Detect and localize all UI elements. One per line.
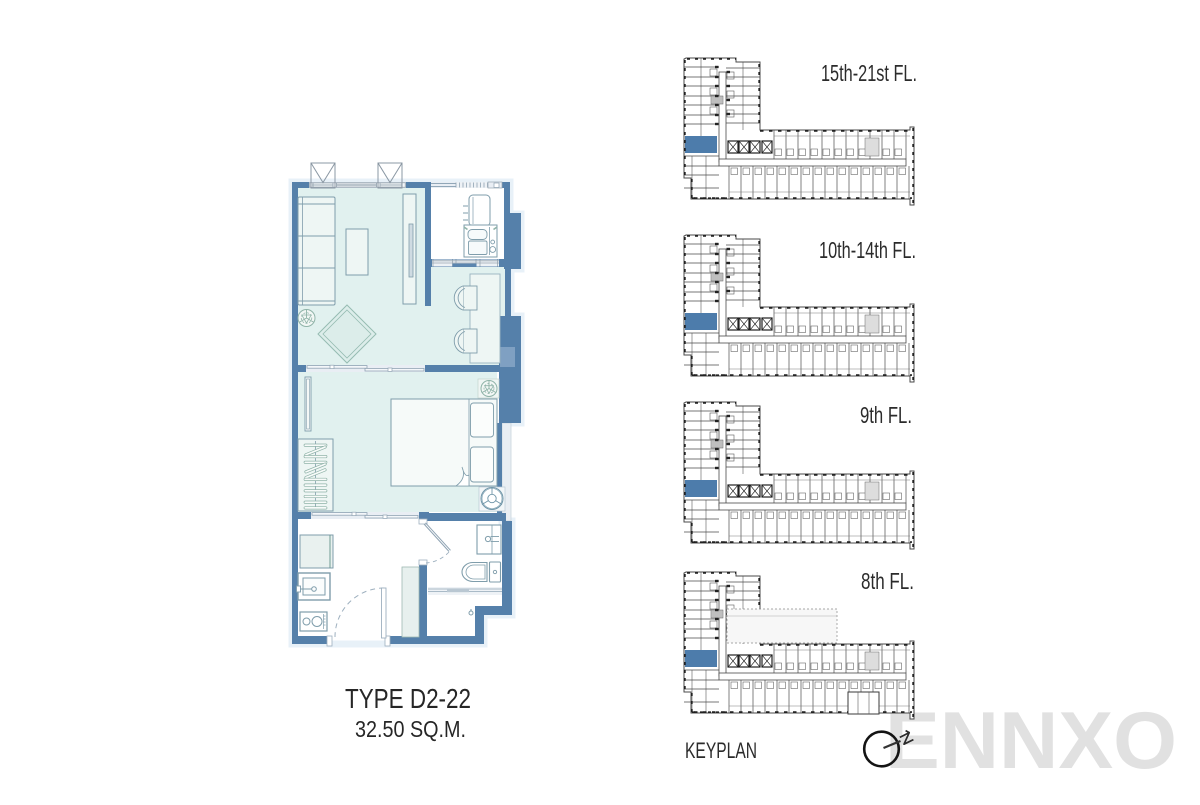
svg-text:10th-14th FL.: 10th-14th FL.: [819, 237, 916, 263]
svg-text:8th FL.: 8th FL.: [861, 568, 914, 594]
svg-text:15th-21st FL.: 15th-21st FL.: [821, 60, 917, 86]
svg-text:32.50 SQ.M.: 32.50 SQ.M.: [355, 716, 466, 742]
svg-text:TYPE D2-22: TYPE D2-22: [345, 683, 471, 714]
svg-text:KEYPLAN: KEYPLAN: [685, 738, 757, 763]
svg-text:ENNXO: ENNXO: [885, 696, 1177, 786]
svg-text:9th FL.: 9th FL.: [860, 402, 912, 428]
